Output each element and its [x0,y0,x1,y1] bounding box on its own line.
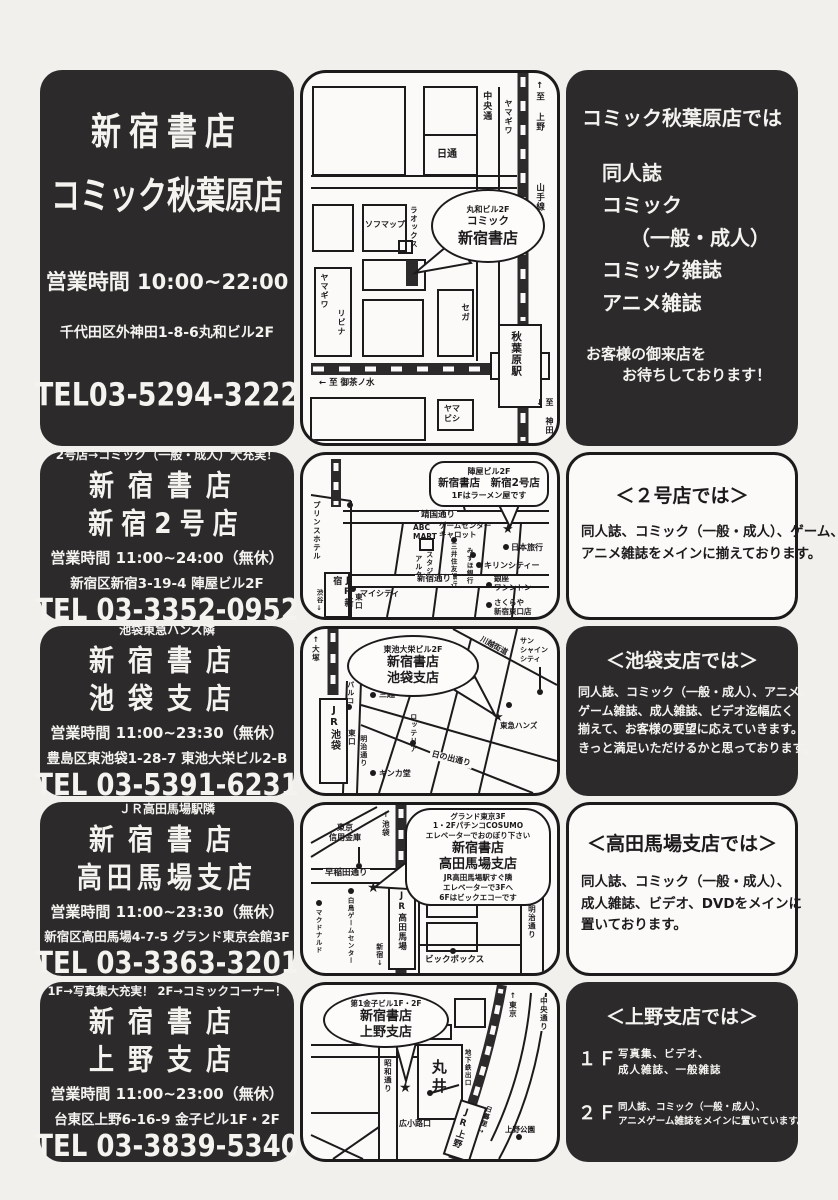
store-name-line1: 新宿書店 [89,638,245,679]
map-label-jr-takadanobaba-station: JR高田馬場 [396,891,407,951]
map-label-meiji-dori: 明治通り [359,735,368,767]
bubble-building: 東池大栄ビル2F [383,645,442,655]
store-info-ueno: 1F→写真集大充実！ 2F→コミックコーナー！ 新宿書店 上野支店 営業時間 1… [40,982,294,1162]
row-ikebukuro: 池袋東急ハンズ隣 新宿書店 池袋支店 営業時間 11:00~23:30（無休） … [40,626,798,796]
store-address: 新宿区高田馬場4-7-5 グランド東京会館3F [44,926,290,945]
map-ikebukuro: ↑大塚 JR池袋 パルコ 東口 明治通り 三越 ロッテリア 川越街道 サン シャ… [300,626,560,796]
store-info-ikebukuro: 池袋東急ハンズ隣 新宿書店 池袋支店 営業時間 11:00~23:30（無休） … [40,626,294,796]
desc-item: コミック [602,189,786,221]
map-label-marui: 丸井 [429,1059,448,1097]
desc-title: コミック秋葉原店では [578,102,786,131]
store-tagline: 2号店→コミック（一般・成人）大充実！ [56,446,278,463]
bubble-store-name: 新宿書店 新宿2号店 [438,477,540,491]
store-desc-shinjuku2: ＜２号店では＞ 同人誌、コミック（一般・成人）、ゲーム、 アニメ雑誌をメインに揃… [566,452,798,620]
store-desc-ikebukuro: ＜池袋支店では＞ 同人誌、コミック（一般・成人）、アニメ、 ゲーム雑誌、成人雑誌… [566,626,798,796]
desc-line: 同人誌、コミック（一般・成人）、アニメ、 [578,683,786,702]
map-label-game-center-carrot: ゲームセンター キャロット [439,521,491,540]
desc-title: ＜２号店では＞ [581,481,783,508]
store-info-shinjuku2: 2号店→コミック（一般・成人）大充実！ 新宿書店 新宿2号店 営業時間 11:0… [40,452,294,620]
bubble-note2: エレベーターでおのぼり下さい [426,831,531,841]
map-label-my-city: マイシティ [360,589,400,599]
floor-2-line: 同人誌、コミック（一般・成人）、 [618,1101,806,1115]
store-hours: 営業時間 11:00~23:30（無休） [50,722,283,743]
map-label-tokyu-hands: 東急ハンズ [500,721,537,730]
desc-footer-line1: お客様の御来店を [586,343,786,364]
map-label-akihabara-station: 秋葉原駅 [509,331,522,377]
bubble-note: 1Fはラーメン屋です [452,491,527,501]
map-label-tokyo-shinkin: 東京 信用金庫 [329,823,361,843]
map-label-prince-hotel: プリンスホテル [312,501,321,561]
store-name-line1: 新宿書店 [89,817,245,858]
floor-1-label: １Ｆ [578,1045,618,1079]
store-name-line1: 新宿書店 [91,100,243,155]
desc-item: コミック雑誌 [602,254,786,286]
map-label-kirin-city: キリンシティー [484,561,540,571]
map-label-nihon-ryoko: 日本旅行 [511,543,543,553]
map-label-lotteria: ロッテリア [409,713,418,753]
bubble-building: 第1金子ビル1F・2F [351,999,422,1009]
store-name-line1: 新宿書店 [89,463,245,504]
store-name-line2: 上野支店 [89,1037,245,1078]
map-label-meiji-dori: 明治通り [527,905,536,939]
map-label-to-ochanomizu: ← 至 御茶ノ水 [319,378,375,389]
desc-line: 同人誌、コミック（一般・成人）、ゲーム、 [581,522,783,544]
map-label-jr-ikebukuro-station: JR池袋 [327,705,340,751]
desc-title: ＜上野支店では＞ [578,1002,786,1029]
store-hours: 営業時間 11:00~24:00（無休） [50,547,283,568]
store-location-marker: ★ [399,1081,412,1095]
map-label-hirokoji-guchi: 広小路口 [399,1119,431,1129]
bubble-building: グランド東京3F [450,812,505,822]
map-label-yamagiwa-top: ヤマギワ [503,99,513,135]
map-label-big-box: ビックボックス [425,955,484,966]
map-label-jr-shinjuku-station: JR新宿 [330,576,353,617]
store-tagline: 1F→写真集大充実！ 2F→コミックコーナー！ [48,983,287,999]
desc-line: きっと満足いただけるかと思っております。 [578,739,786,758]
store-hours: 営業時間 11:00~23:30（無休） [50,901,283,922]
map-label-mizuho-bank: みずほ銀行 [465,547,473,585]
map-takadanobaba: 東京 信用金庫 ↑池袋 早稲田通り 白鳥ゲームセンター マクドナルド JR高田馬… [300,802,560,976]
floor-1-line: 成人雑誌、一般雑誌 [618,1063,722,1079]
store-name-line2: 池袋支店 [89,676,245,717]
desc-line: 成人雑誌、ビデオ、DVDをメインに [581,894,783,916]
map-label-to-shibuya: 渋谷↓ [315,589,323,613]
desc-line: 置いております。 [581,915,783,937]
store-address: 千代田区外神田1-8-6丸和ビル2F [60,322,274,342]
map-label-parco: パルコ [346,681,355,705]
map-bubble-ueno: 第1金子ビル1F・2F 新宿書店 上野支店 [323,992,449,1048]
desc-item: アニメ雑誌 [602,287,786,319]
desc-footer-line2: お待ちしております！ [622,364,786,385]
map-label-shiratori-game-center: 白鳥ゲームセンター [346,897,354,965]
desc-title: ＜高田馬場支店では＞ [581,829,783,856]
map-label-waseda-dori: 早稲田通り [323,869,370,878]
store-tel: TEL 03-3839-5340 [35,1129,299,1164]
row-shinjuku2: 2号店→コミック（一般・成人）大充実！ 新宿書店 新宿2号店 営業時間 11:0… [40,452,798,620]
map-bubble-shinjuku2: 陣屋ビル2F 新宿書店 新宿2号店 1Fはラーメン屋です [429,461,549,507]
desc-line: 同人誌、コミック（一般・成人）、 [581,872,783,894]
bubble-store-name1: 新宿書店 [360,1009,412,1025]
store-desc-takadanobaba: ＜高田馬場支店では＞ 同人誌、コミック（一般・成人）、 成人雑誌、ビデオ、DVD… [566,802,798,976]
store-desc-akihabara: コミック秋葉原店では 同人誌 コミック （一般・成人） コミック雑誌 アニメ雑誌… [566,70,798,446]
map-label-to-tokyo: ↑東京 [508,991,517,1018]
map-label-sunshine-city: サン シャイン シティ [520,637,548,663]
row-ueno: 1F→写真集大充実！ 2F→コミックコーナー！ 新宿書店 上野支店 営業時間 1… [40,982,798,1162]
desc-line: 揃えて、お客様の要望に応えていきます。 [578,720,786,739]
map-label-mcdonalds: マクドナルド [314,909,322,954]
store-location-marker: ★ [492,711,504,724]
desc-item: （一般・成人） [630,222,786,254]
floor-2-row: ２Ｆ 同人誌、コミック（一般・成人）、 アニメゲーム雑誌をメインに置いています。 [578,1099,786,1130]
floor-1-line: 写真集、ビデオ、 [618,1047,722,1063]
map-label-subway-exit: 地下鉄出口 [463,1049,471,1087]
store-address: 豊島区東池袋1-28-7 東池大栄ビル2-B [47,747,288,767]
store-info-akihabara: 新宿書店 コミック秋葉原店 営業時間 10:00~22:00 千代田区外神田1-… [40,70,294,446]
store-desc-ueno: ＜上野支店では＞ １Ｆ 写真集、ビデオ、 成人雑誌、一般雑誌 ２Ｆ 同人誌、コミ… [566,982,798,1162]
map-bubble-ikebukuro: 東池大栄ビル2F 新宿書店 池袋支店 [347,635,479,697]
map-label-livina: リビナ [336,309,346,336]
desc-line: ゲーム雑誌、成人雑誌、ビデオ迄幅広く [578,702,786,721]
bubble-store-name2: 上野支店 [360,1025,412,1041]
desc-item: 同人誌 [602,157,786,189]
map-label-to-otsuka: ↑大塚 [311,635,320,662]
map-label-chuo-dori: 中央通り [539,997,548,1031]
store-name-line2: 新宿2号店 [88,501,245,542]
floor-1-row: １Ｆ 写真集、ビデオ、 成人雑誌、一般雑誌 [578,1045,786,1079]
map-label-higashi-guchi: 東口 [347,729,356,746]
store-tel: TEL03-5294-3222 [35,376,299,413]
floor-2-label: ２Ｆ [578,1099,618,1130]
map-label-yamabishi: ヤマ ビシ [444,404,460,424]
bubble-building: 陣屋ビル2F [467,467,510,477]
map-label-to-ueno: ↑至 上野 [534,81,545,132]
store-address: 台東区上野6-16-9 金子ビル1F・2F [54,1108,280,1128]
bubble-store-name1: 新宿書店 [452,841,504,857]
map-label-sega: セガ [459,303,470,322]
map-label-yamagiwa: ヤマギワ [319,273,329,309]
map-label-sakuraya: さくらや 新宿東口店 [494,598,532,617]
map-label-abc-mart: ABC MART [413,523,437,542]
row-akihabara: 新宿書店 コミック秋葉原店 営業時間 10:00~22:00 千代田区外神田1-… [40,70,798,446]
store-location-marker: ★ [502,523,514,536]
desc-title: ＜池袋支店では＞ [578,646,786,673]
desc-line: アニメ雑誌をメインに揃えております。 [581,544,783,566]
map-label-shinjuku-dori: 新宿通り [415,575,453,584]
map-label-sofmap: ソフマップ [365,220,405,230]
map-label-chuo-dori: 中央通 [480,91,491,121]
map-label-ueno-park: 上野公園 [505,1125,535,1134]
bubble-store-name: 新宿書店 [458,229,518,248]
map-label-kinkado: キンカ堂 [379,769,411,779]
store-tel: TEL 03-3352-0952 [35,594,299,629]
map-shinjuku2: プリンスホテル JR新宿 渋谷↓ 東口 マイシティ 靖国通り ABC MART … [300,452,560,620]
bubble-note4: エレベーターで3Fへ [443,883,513,893]
row-takadanobaba: ＪＲ高田馬場駅隣 新宿書店 高田馬場支店 営業時間 11:00~23:30（無休… [40,802,798,976]
bubble-store-name1: 新宿書店 [387,655,439,671]
map-bubble-takadanobaba: グランド東京3F 1・2FパチンコCOSUMO エレベーターでおのぼり下さい 新… [405,808,551,906]
map-bubble-akihabara: 丸和ビル2F コミック 新宿書店 [431,189,545,263]
store-name-line2: コミック秋葉原店 [51,165,283,220]
bubble-store-name2: 高田馬場支店 [439,857,517,873]
map-label-to-shinjuku: 新宿↓ [375,943,384,968]
map-label-to-ikebukuro: ↑池袋 [381,810,390,837]
bubble-note3: JR高田馬場駅すぐ隣 [444,873,513,883]
store-info-takadanobaba: ＪＲ高田馬場駅隣 新宿書店 高田馬場支店 営業時間 11:00~23:30（無休… [40,802,294,976]
store-hours: 営業時間 10:00~22:00 [46,266,289,296]
store-name-line2: 高田馬場支店 [77,855,257,896]
bubble-note1: 1・2FパチンコCOSUMO [433,821,523,831]
ad-sheet: 新宿書店 コミック秋葉原店 営業時間 10:00~22:00 千代田区外神田1-… [40,70,798,1168]
store-tel: TEL 03-5391-6231 [35,769,299,804]
store-location-marker: ★ [367,881,380,895]
map-ueno: 昭和通り 丸井 地下鉄出口 ↑東京 中央通り JR上野 日暮里→ 広小路口 上野… [300,982,560,1162]
bubble-building: 丸和ビル2F [466,205,509,215]
store-tel: TEL 03-3363-3201 [35,946,299,981]
store-hours: 営業時間 11:00~23:00（無休） [50,1083,283,1104]
map-label-yasukuni-dori: 靖国通り [419,511,457,520]
map-akihabara: 中央通 ヤマギワ ↑至 上野 山手線 日通 ソフマップ ラオックス ヤマギワ リ… [300,70,560,446]
floor-2-line: アニメゲーム雑誌をメインに置いています。 [618,1115,806,1129]
map-label-to-kanda: 至 神田↓ [534,398,554,443]
map-label-ginza-washington: 銀座 ワシントン [494,574,532,593]
map-label-showa-dori: 昭和通り [383,1059,392,1093]
bubble-note5: 6Fはビックエコーです [439,893,516,903]
bubble-store-name2: 池袋支店 [387,671,439,687]
map-label-laox: ラオックス [409,206,418,249]
store-name-line1: 新宿書店 [89,999,245,1040]
map-label-nittsu: 日通 [437,149,457,162]
bubble-line2: コミック [467,215,509,229]
store-address: 新宿区新宿3-19-4 陣屋ビル2F [70,572,264,592]
